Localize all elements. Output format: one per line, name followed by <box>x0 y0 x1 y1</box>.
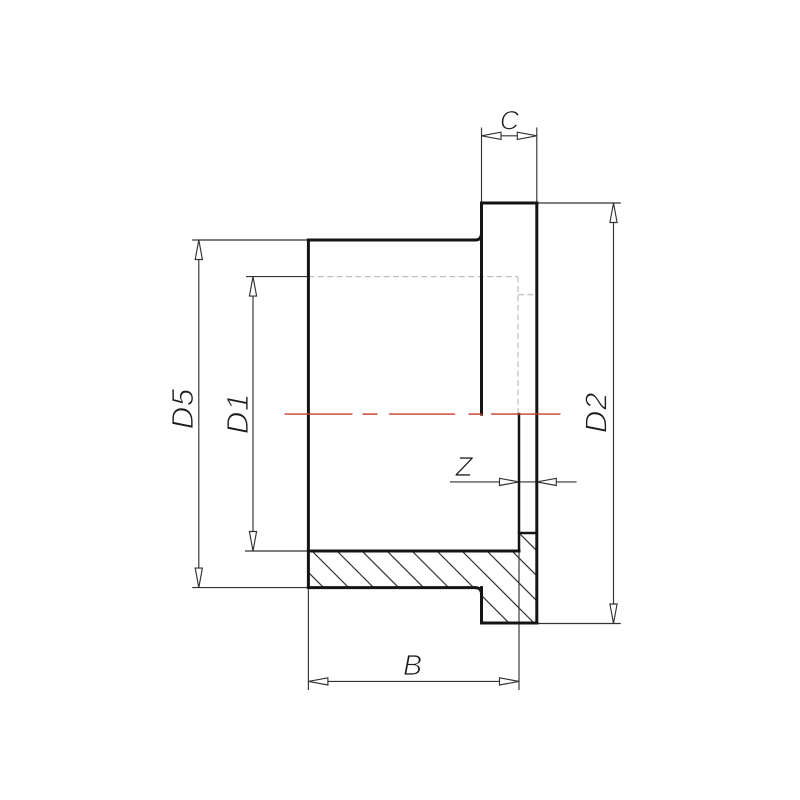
svg-text:B: B <box>403 650 422 682</box>
svg-text:Z: Z <box>454 451 473 482</box>
svg-text:C: C <box>500 106 520 136</box>
svg-text:D5: D5 <box>165 388 200 429</box>
svg-text:D1: D1 <box>220 393 255 434</box>
svg-text:D2: D2 <box>579 392 614 433</box>
